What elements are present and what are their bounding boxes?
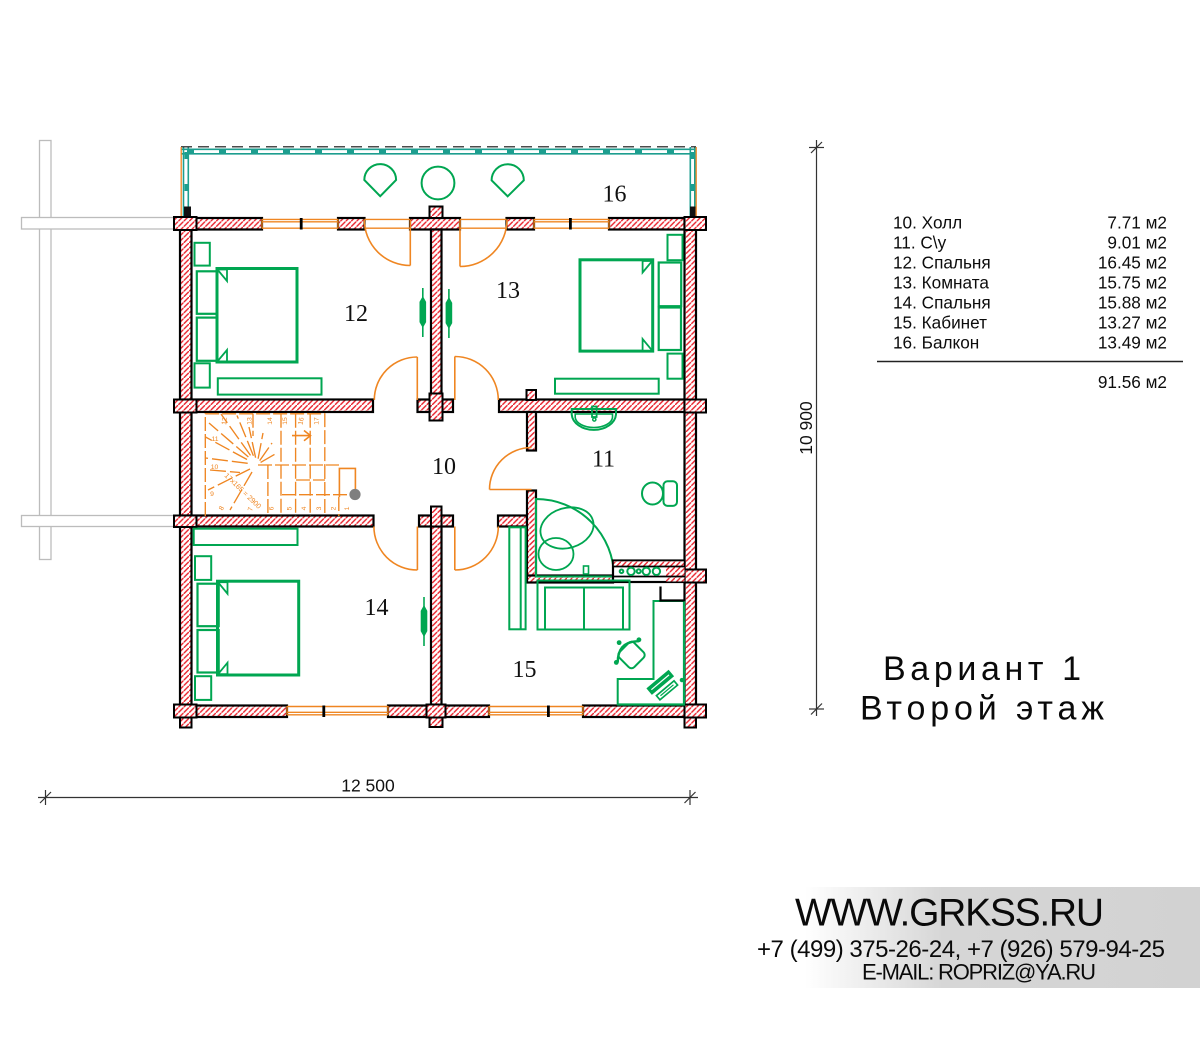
svg-text:16.45 м2: 16.45 м2: [1098, 253, 1167, 273]
svg-text:7.71 м2: 7.71 м2: [1107, 213, 1167, 233]
svg-text:10: 10: [432, 454, 456, 480]
svg-text:15. Кабинет: 15. Кабинет: [893, 313, 987, 333]
svg-text:Второй этаж: Второй этаж: [860, 690, 1104, 728]
svg-text:10: 10: [211, 464, 219, 471]
svg-text:E-MAIL: ROPRIZ@YA.RU: E-MAIL: ROPRIZ@YA.RU: [862, 960, 1096, 985]
svg-text:91.56 м2: 91.56 м2: [1098, 372, 1167, 392]
svg-text:9: 9: [210, 491, 214, 498]
svg-text:12: 12: [221, 417, 229, 425]
svg-text:11. С\у: 11. С\у: [893, 233, 947, 253]
svg-text:2: 2: [330, 506, 337, 510]
svg-text:15: 15: [282, 417, 289, 425]
svg-text:16: 16: [603, 182, 627, 208]
svg-text:10 900: 10 900: [796, 401, 816, 455]
svg-text:16: 16: [298, 417, 306, 426]
svg-text:13. Комната: 13. Комната: [893, 273, 989, 293]
svg-text:3: 3: [316, 506, 323, 510]
svg-text:13.49 м2: 13.49 м2: [1098, 333, 1167, 353]
svg-text:1: 1: [344, 506, 351, 510]
svg-text:6: 6: [268, 506, 275, 510]
svg-text:12. Спальня: 12. Спальня: [893, 253, 991, 273]
svg-text:13.27 м2: 13.27 м2: [1098, 313, 1167, 333]
svg-text:15.88 м2: 15.88 м2: [1098, 293, 1167, 313]
svg-text:12 500: 12 500: [341, 776, 395, 796]
svg-text:10. Холл: 10. Холл: [893, 213, 962, 233]
svg-text:13: 13: [247, 417, 254, 425]
svg-text:15: 15: [513, 657, 537, 683]
svg-text:14. Спальня: 14. Спальня: [893, 293, 991, 313]
svg-text:5: 5: [287, 506, 294, 510]
svg-text:13: 13: [496, 278, 520, 304]
svg-text:12: 12: [344, 301, 368, 327]
svg-text:15.75 м2: 15.75 м2: [1098, 273, 1167, 293]
svg-text:11: 11: [592, 447, 615, 473]
svg-text:11: 11: [211, 436, 218, 443]
svg-text:14: 14: [267, 417, 274, 425]
svg-text:17: 17: [314, 417, 321, 425]
svg-text:16. Балкон: 16. Балкон: [893, 333, 979, 353]
svg-text:WWW.GRKSS.RU: WWW.GRKSS.RU: [795, 892, 1104, 935]
svg-text:Вариант 1: Вариант 1: [883, 650, 1081, 688]
svg-text:9.01 м2: 9.01 м2: [1107, 233, 1167, 253]
svg-text:14: 14: [365, 595, 389, 621]
svg-text:4: 4: [301, 506, 308, 510]
